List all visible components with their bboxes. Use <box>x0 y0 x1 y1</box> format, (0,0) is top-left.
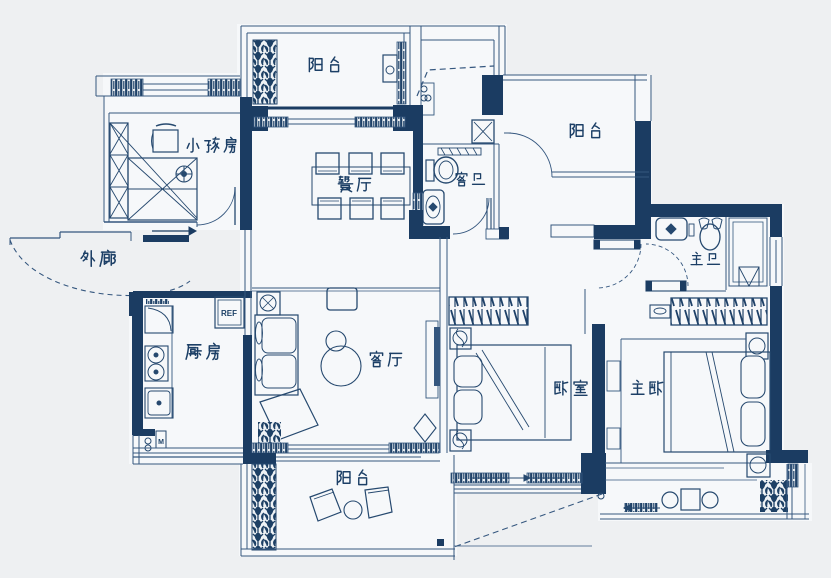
svg-text:M: M <box>158 439 164 446</box>
svg-text:REF: REF <box>221 309 237 318</box>
